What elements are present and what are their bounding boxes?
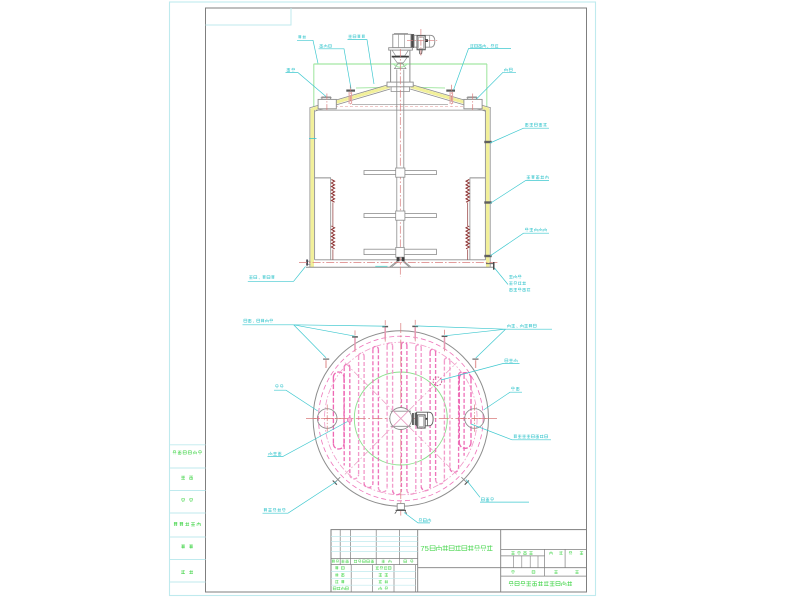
- svg-text:75: 75: [420, 544, 428, 553]
